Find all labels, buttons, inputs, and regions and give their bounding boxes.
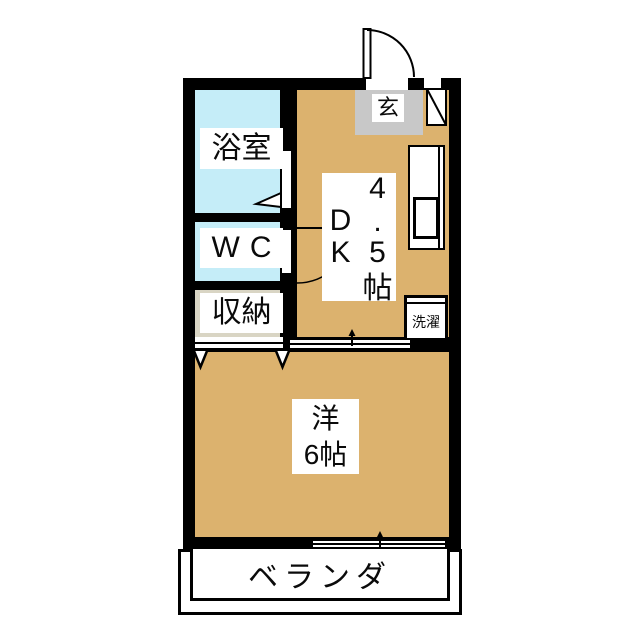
entrance-door-leaf	[364, 29, 371, 78]
closet-door-notch-right	[276, 351, 289, 367]
entrance-label: 玄	[372, 94, 404, 122]
bathroom-door-triangle	[256, 193, 281, 207]
floor-plan: 洗濯 浴室 WC 収納 玄	[0, 0, 640, 640]
wc-label: WC	[200, 228, 283, 268]
sliding-door-tick	[349, 329, 356, 346]
western-room-label: 洋 6帖	[292, 399, 359, 474]
storage-label: 収納	[200, 293, 283, 333]
dk-label: 4 D . K 5 帖	[322, 173, 396, 301]
window-tick	[377, 531, 384, 548]
closet-door-notch-left	[194, 351, 207, 367]
entrance-door-swing-arc	[367, 30, 414, 77]
plan-symbols	[0, 0, 640, 640]
cabinet-diagonal-line	[427, 89, 446, 125]
bathroom-label: 浴室	[200, 128, 283, 169]
